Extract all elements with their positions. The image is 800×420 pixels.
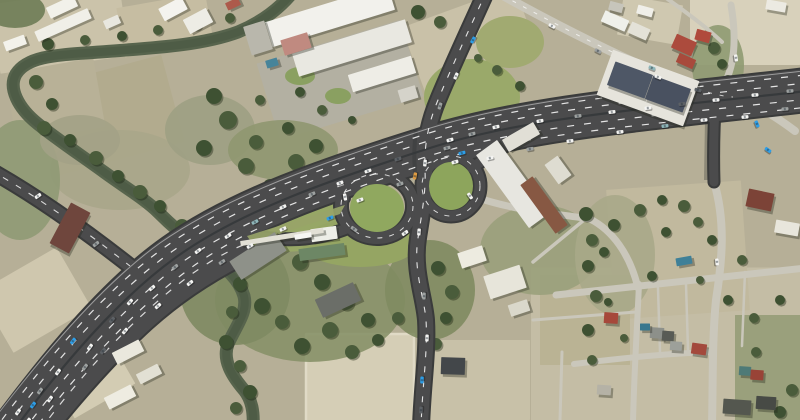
tree [275,315,289,329]
tree [696,276,704,284]
vehicle-windshield [784,108,786,111]
vehicle [700,118,708,123]
new-road [714,92,716,182]
tree [154,200,166,212]
vehicle [678,102,686,108]
building [640,324,650,331]
grass-patch [476,16,544,68]
vehicle-windshield [577,115,579,118]
vehicle-windshield [681,103,683,106]
tree [431,261,445,275]
vehicle [417,228,422,236]
aerial-render-canvas [0,0,800,420]
tree [295,87,305,97]
tree [64,134,76,146]
vehicle-windshield [418,231,421,233]
tree [206,88,222,104]
vehicle [714,258,719,266]
tree [255,95,265,105]
vehicle [751,93,759,98]
tree [751,347,761,357]
tree [693,217,703,227]
tree [515,81,525,91]
building [670,341,683,351]
tree [80,35,90,45]
vehicle-windshield [424,162,427,164]
tree [322,322,338,338]
vehicle-windshield [414,175,417,177]
building [691,343,707,356]
tree [657,195,667,205]
tree [608,219,620,231]
tree [634,204,646,216]
tree [492,65,502,75]
vehicle [419,406,424,414]
tree [411,5,425,19]
tree [225,13,235,23]
tree [294,338,310,354]
tree [392,312,404,324]
vehicle [786,89,794,94]
tree [196,140,212,156]
building [441,357,466,375]
tree [440,312,452,324]
building [662,331,675,342]
vehicle [753,120,760,129]
vehicle-windshield [703,119,705,122]
vehicle [420,376,425,384]
vehicle-windshield [619,131,621,134]
tree [661,227,671,237]
tree [361,313,375,327]
tree [582,260,594,272]
tree [586,234,598,246]
building [604,312,619,324]
vehicle [644,106,652,112]
tree [348,116,356,124]
vehicle-windshield [647,107,649,110]
vehicle-windshield [715,99,717,102]
tree [29,75,43,89]
vehicle [741,115,749,120]
tree [219,111,237,129]
tree [46,98,58,110]
tree [314,274,330,290]
local-road [560,352,562,420]
vehicle-windshield [664,125,666,128]
lane-marking [414,130,416,172]
vehicle-windshield [421,379,423,381]
building [457,245,487,268]
tree [737,255,747,265]
tree [579,207,593,221]
vehicle [616,130,624,136]
vehicle-windshield [420,409,422,411]
tree [243,385,257,399]
vehicle-windshield [754,94,756,97]
vehicle-windshield [716,261,719,263]
tree [723,295,733,305]
vehicle [763,147,772,155]
tree [238,158,254,174]
vehicle-windshield [789,90,791,93]
vehicle [425,334,430,342]
tree [775,295,785,305]
vehicle [423,159,428,167]
tree [153,25,163,35]
building [739,366,752,376]
tree [707,235,717,245]
tree [604,298,612,306]
roundabout-island [429,162,473,210]
tree [226,306,238,318]
tree [474,54,482,62]
tree [112,170,124,182]
tree [133,185,147,199]
lane-marking [706,118,707,180]
tree [599,247,609,257]
tree [309,139,323,153]
vehicle-windshield [569,140,571,143]
tree [749,313,759,323]
tree [317,105,327,115]
building [597,385,612,396]
tree [254,298,270,314]
tree [234,360,246,372]
vehicle-windshield [744,116,746,119]
vehicle-windshield [539,120,541,123]
tree [37,121,51,135]
grass-patch [325,88,351,104]
tree [117,31,127,41]
tree [445,285,459,299]
tree [678,200,690,212]
tree [219,335,233,349]
tree [717,59,727,69]
vehicle [422,292,427,300]
tree [282,122,294,134]
vehicle-windshield [426,337,428,339]
tree [372,334,384,346]
field [430,340,530,420]
vehicle-windshield [735,57,738,59]
vehicle [712,98,720,103]
tree [620,334,628,342]
tree [647,271,657,281]
building [756,396,777,410]
vehicle-windshield [423,295,425,297]
vehicle-windshield [611,111,613,114]
vehicle [781,107,789,112]
roundabout-island [350,184,404,232]
tree [582,324,594,336]
tree [786,384,798,396]
tree [249,135,263,149]
tree [230,402,242,414]
vehicle-windshield [344,196,347,198]
tree [587,355,597,365]
vehicle-windshield [529,148,531,151]
aerial-map [0,0,800,420]
tree [590,290,602,302]
tree [434,16,446,28]
vehicle [661,124,669,130]
building [750,370,764,381]
building [723,399,752,416]
tree [345,345,359,359]
tree [89,151,103,165]
vehicle [608,110,616,116]
